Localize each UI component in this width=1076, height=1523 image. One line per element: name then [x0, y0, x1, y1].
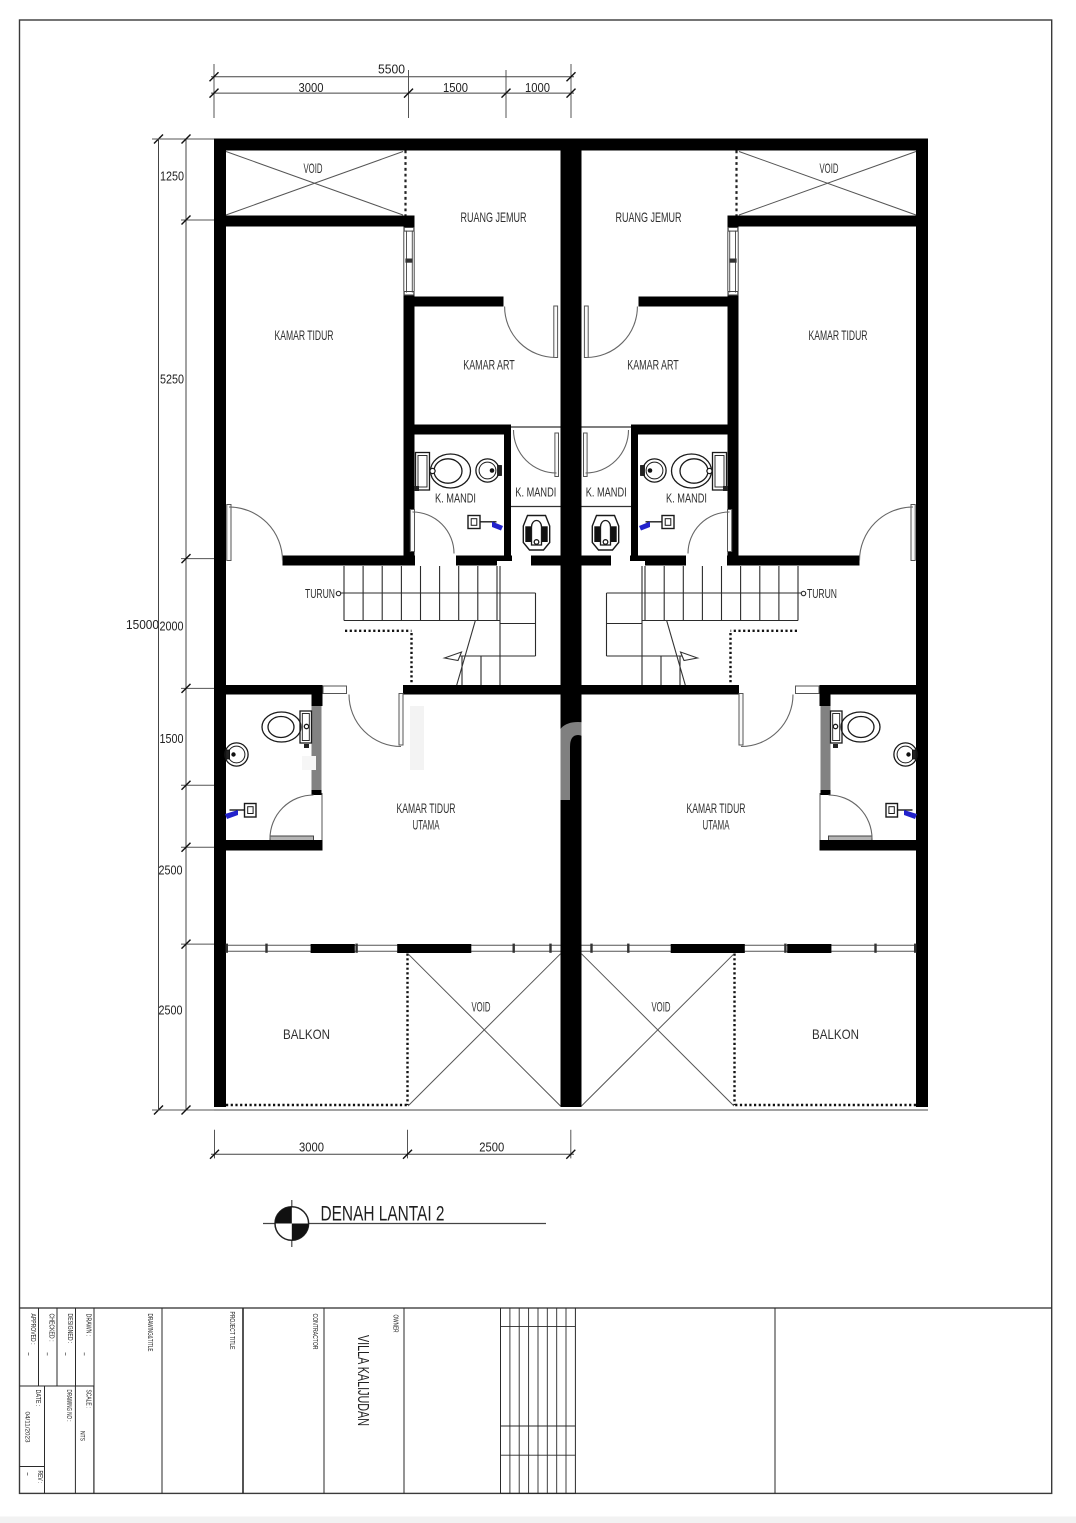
- svg-text:KAMAR TIDUR: KAMAR TIDUR: [397, 800, 456, 816]
- svg-text:15000: 15000: [126, 618, 159, 632]
- svg-text:KAMAR TIDUR: KAMAR TIDUR: [687, 800, 746, 816]
- svg-text:CONTRACTOR: CONTRACTOR: [311, 1314, 318, 1350]
- svg-text:RUANG JEMUR: RUANG JEMUR: [616, 209, 682, 225]
- svg-text:TURUN: TURUN: [807, 586, 837, 601]
- svg-text:UTAMA: UTAMA: [413, 816, 440, 832]
- svg-text:KAMAR TIDUR: KAMAR TIDUR: [809, 327, 868, 343]
- svg-text:DENAH LANTAI 2: DENAH LANTAI 2: [321, 1203, 445, 1226]
- svg-text:CHECKED :: CHECKED :: [48, 1314, 55, 1342]
- svg-text:KAMAR ART: KAMAR ART: [627, 356, 679, 372]
- svg-text:2500: 2500: [479, 1140, 504, 1154]
- svg-text:APPROVED :: APPROVED :: [29, 1314, 36, 1345]
- svg-text:VILLA KALIJUDAN: VILLA KALIJUDAN: [354, 1335, 371, 1426]
- svg-text:BALKON: BALKON: [812, 1026, 859, 1042]
- svg-text:3000: 3000: [299, 81, 324, 95]
- svg-text:K. MANDI: K. MANDI: [435, 491, 476, 505]
- svg-text:KAMAR TIDUR: KAMAR TIDUR: [275, 327, 334, 343]
- svg-text:REV :: REV :: [36, 1471, 43, 1484]
- svg-text:TURUN: TURUN: [305, 586, 335, 601]
- svg-text:2000: 2000: [160, 619, 184, 633]
- svg-text:OWNER: OWNER: [392, 1315, 399, 1333]
- svg-text:K. MANDI: K. MANDI: [515, 485, 556, 499]
- svg-text:DRAWN :: DRAWN :: [85, 1314, 92, 1337]
- svg-text:VOID: VOID: [820, 160, 839, 176]
- svg-text:DESIGNED :: DESIGNED :: [66, 1314, 73, 1344]
- svg-text:DRAWING&TITLE: DRAWING&TITLE: [146, 1314, 153, 1352]
- svg-text:VOID: VOID: [472, 998, 491, 1014]
- svg-text:3000: 3000: [299, 1140, 324, 1154]
- svg-text:1000: 1000: [525, 81, 550, 95]
- svg-text:RUANG JEMUR: RUANG JEMUR: [461, 209, 527, 225]
- svg-text:SCALE :: SCALE :: [85, 1390, 92, 1409]
- svg-text:UTAMA: UTAMA: [703, 816, 730, 832]
- svg-text:1500: 1500: [443, 81, 468, 95]
- svg-text:KAMAR ART: KAMAR ART: [463, 356, 515, 372]
- svg-text:PROJECT TITLE: PROJECT TITLE: [228, 1312, 235, 1350]
- svg-text:DATE :: DATE :: [34, 1390, 41, 1407]
- svg-text:NTS: NTS: [79, 1431, 86, 1442]
- svg-text:K. MANDI: K. MANDI: [586, 485, 627, 499]
- svg-text:1500: 1500: [160, 732, 184, 746]
- svg-text:5500: 5500: [378, 62, 405, 76]
- svg-text:DRAWING NO :: DRAWING NO :: [65, 1390, 72, 1422]
- svg-text:BALKON: BALKON: [283, 1026, 330, 1042]
- svg-text:VOID: VOID: [652, 998, 671, 1014]
- svg-text:5250: 5250: [160, 372, 184, 386]
- svg-text:04/11/2023: 04/11/2023: [24, 1412, 31, 1443]
- svg-text:VOID: VOID: [304, 160, 323, 176]
- svg-text:K. MANDI: K. MANDI: [666, 491, 707, 505]
- svg-text:2500: 2500: [159, 863, 183, 877]
- svg-text:1250: 1250: [160, 169, 184, 183]
- svg-text:2500: 2500: [159, 1003, 183, 1017]
